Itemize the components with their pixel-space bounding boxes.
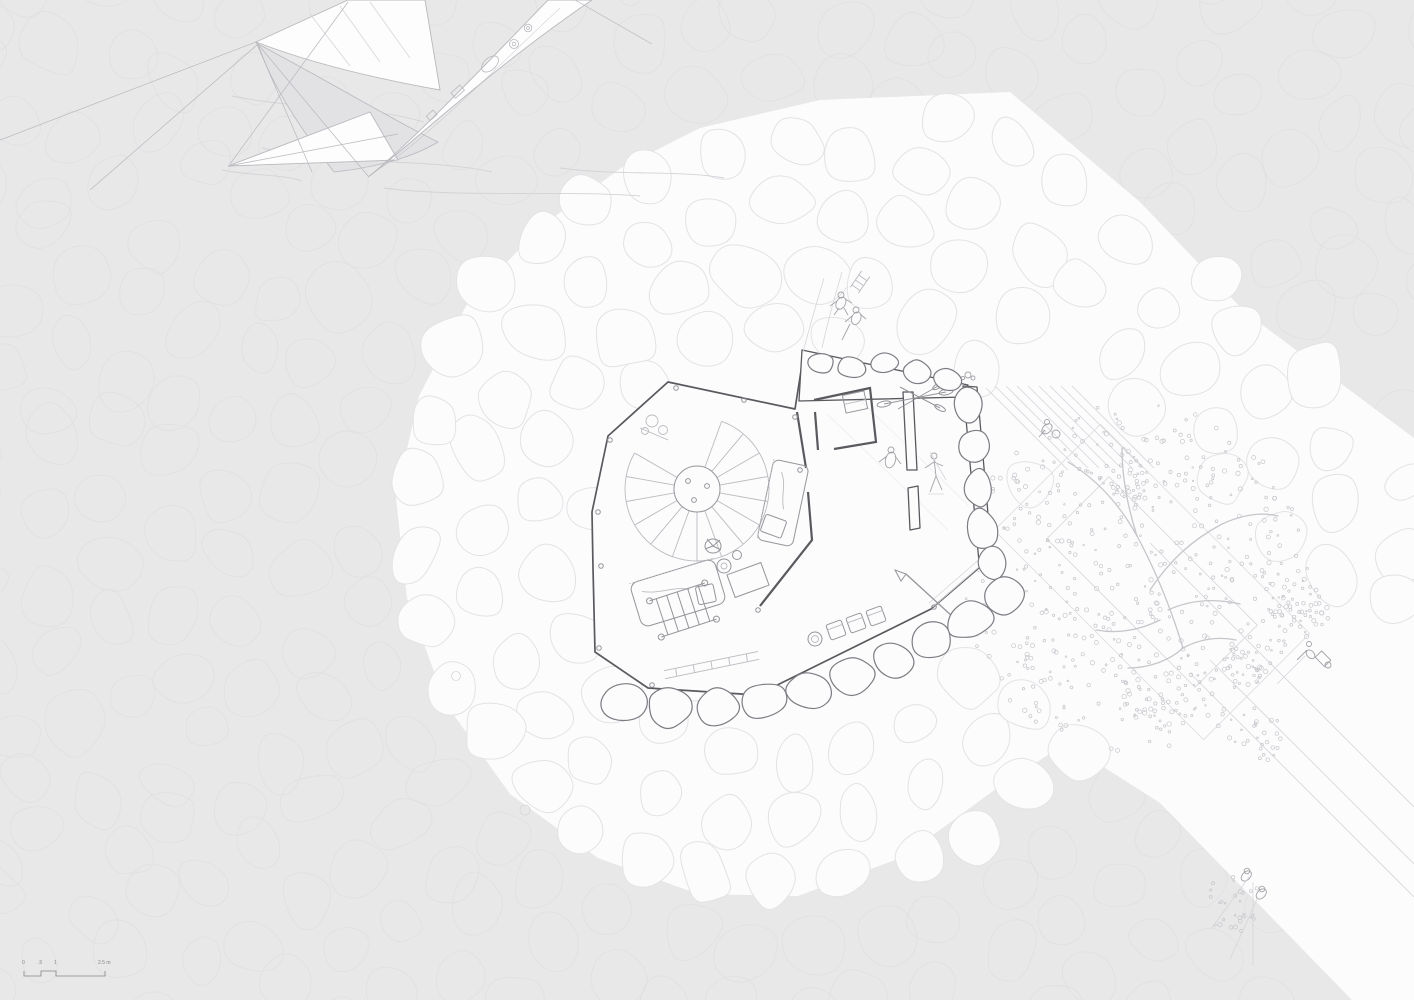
scale-label-half: .5 xyxy=(38,960,42,966)
site-plan-page: 0 .5 1 2.5 m xyxy=(0,0,1414,1000)
scale-label-one: 1 xyxy=(54,960,57,966)
site-plan-drawing: 0 .5 1 2.5 m xyxy=(0,0,1414,1000)
courtyard-west-wall xyxy=(908,486,920,530)
scale-label-0: 0 xyxy=(22,960,25,966)
scale-label-max: 2.5 m xyxy=(98,960,111,966)
